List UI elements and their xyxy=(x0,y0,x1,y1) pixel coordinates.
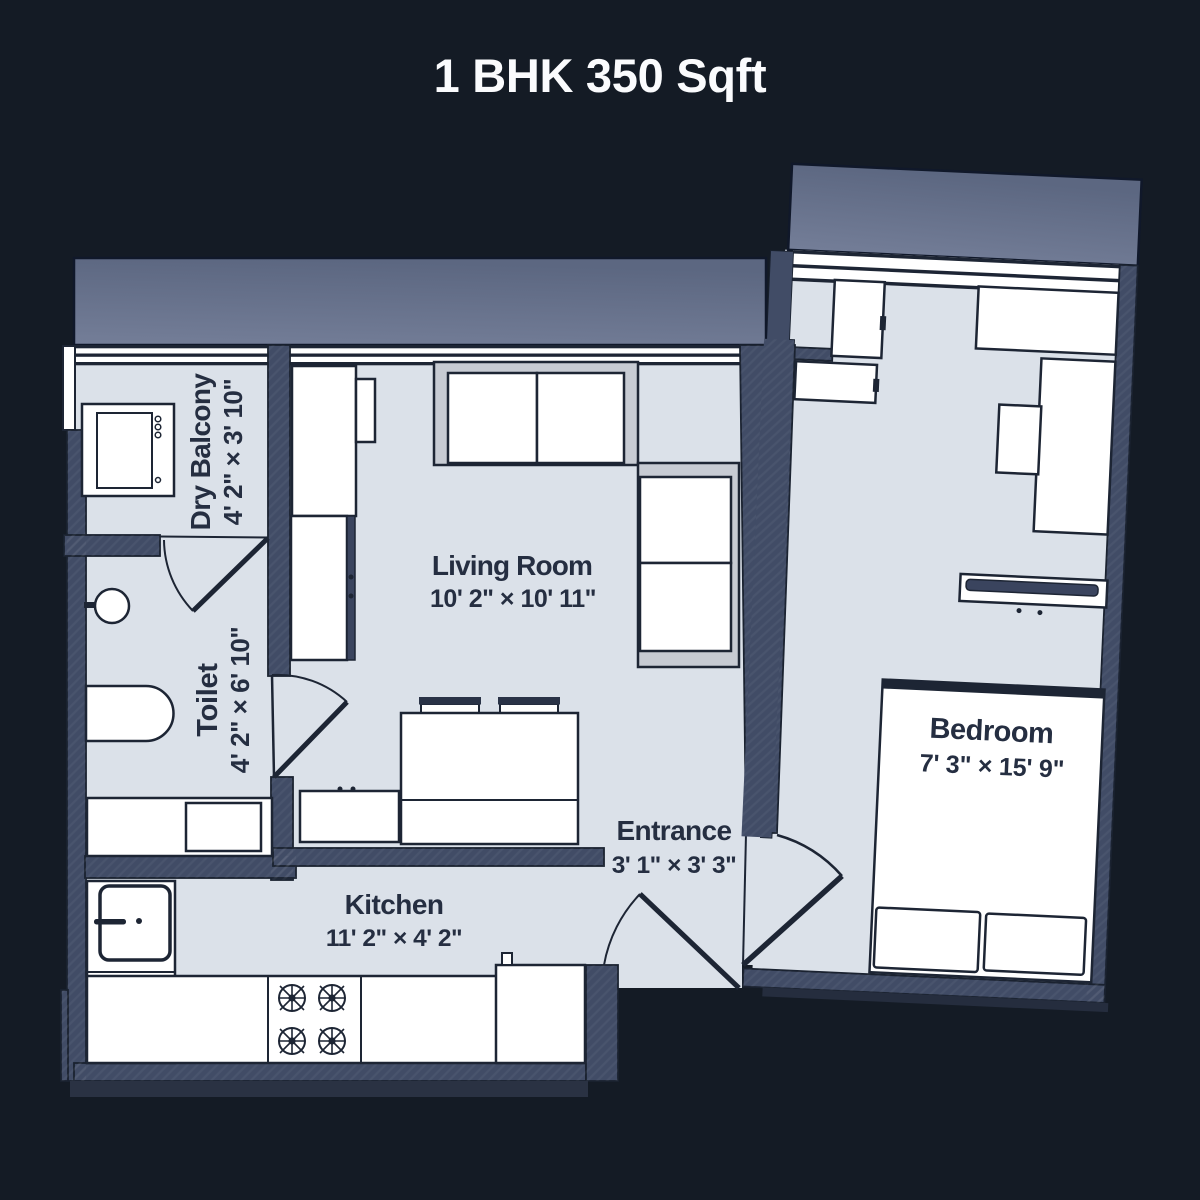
svg-text:Entrance: Entrance xyxy=(616,815,731,846)
svg-text:11' 2" × 4' 2": 11' 2" × 4' 2" xyxy=(326,925,462,952)
svg-text:3' 1" × 3' 3": 3' 1" × 3' 3" xyxy=(612,852,736,879)
svg-text:Toilet: Toilet xyxy=(192,663,224,737)
svg-text:10' 2" × 10' 11": 10' 2" × 10' 11" xyxy=(430,585,596,613)
svg-text:Kitchen: Kitchen xyxy=(345,889,444,920)
svg-text:Dry Balcony: Dry Balcony xyxy=(185,373,216,531)
svg-text:Living Room: Living Room xyxy=(432,550,592,581)
svg-text:Bedroom: Bedroom xyxy=(929,713,1054,751)
svg-text:4' 2" × 3' 10": 4' 2" × 3' 10" xyxy=(218,379,248,525)
svg-text:4' 2" × 6' 10": 4' 2" × 6' 10" xyxy=(225,627,255,773)
